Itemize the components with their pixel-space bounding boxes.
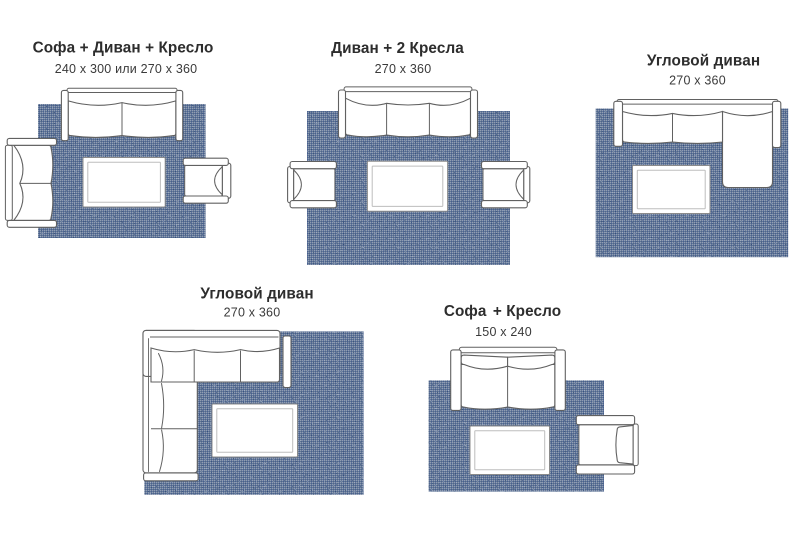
svg-text:270 x 360: 270 x 360: [224, 306, 281, 320]
svg-text:Софа + Диван + Кресло: Софа + Диван + Кресло: [33, 40, 214, 57]
svg-text:Софа + Кресло: Софа + Кресло: [444, 303, 561, 320]
svg-text:150 x 240: 150 x 240: [475, 325, 532, 339]
svg-text:270 x 360: 270 x 360: [375, 62, 432, 76]
svg-text:Диван + 2 Кресла: Диван + 2 Кресла: [331, 40, 464, 57]
svg-text:Угловой диван: Угловой диван: [200, 286, 313, 303]
svg-text:270 x 360: 270 x 360: [669, 74, 726, 88]
svg-text:240 x 300 или 270 x 360: 240 x 300 или 270 x 360: [55, 62, 198, 76]
svg-text:Угловой диван: Угловой диван: [647, 53, 760, 70]
